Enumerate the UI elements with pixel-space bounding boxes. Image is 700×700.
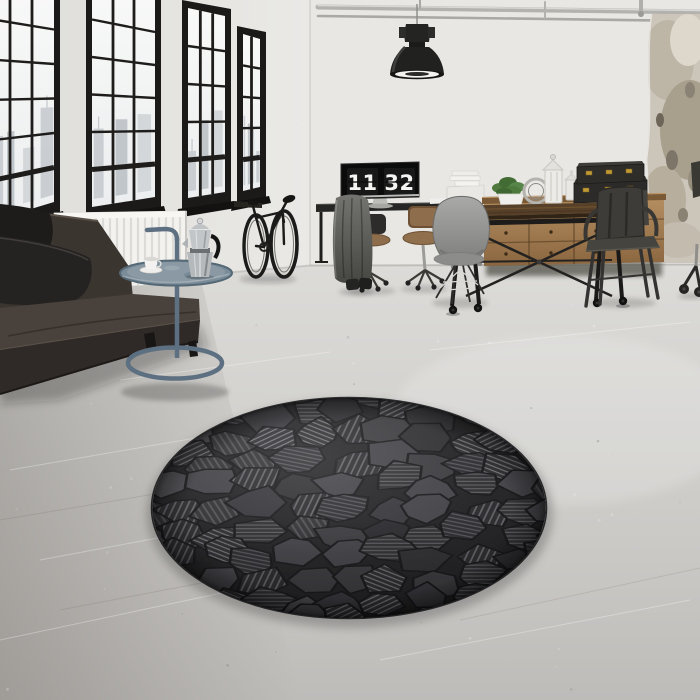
chair-back (596, 187, 644, 240)
scene: 11 32 (0, 0, 700, 700)
window-3 (176, 0, 236, 218)
side-table-shadow (121, 383, 229, 401)
plant-pot (498, 194, 524, 205)
clock-minutes: 32 (384, 171, 414, 195)
moka-knob (197, 218, 203, 224)
window-2 (80, 0, 166, 227)
coat-jacket (333, 194, 373, 295)
clock-hours: 11 (347, 171, 377, 195)
factory-windows (0, 0, 271, 242)
window-4 (231, 26, 271, 211)
loft-interior-photo: 11 32 (0, 0, 700, 700)
